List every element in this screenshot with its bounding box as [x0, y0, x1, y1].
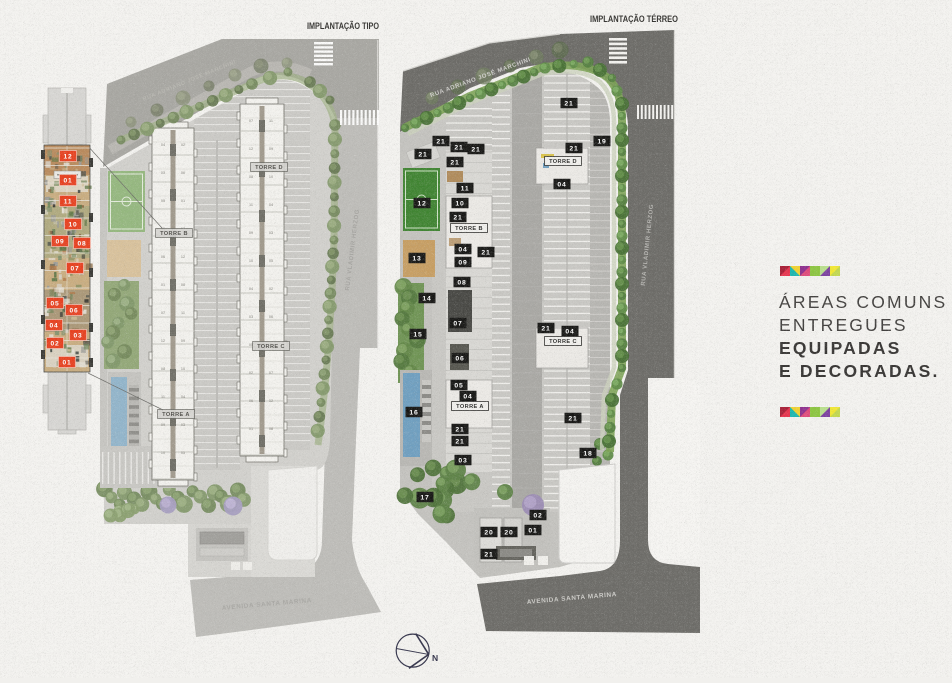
- svg-text:N: N: [432, 653, 438, 663]
